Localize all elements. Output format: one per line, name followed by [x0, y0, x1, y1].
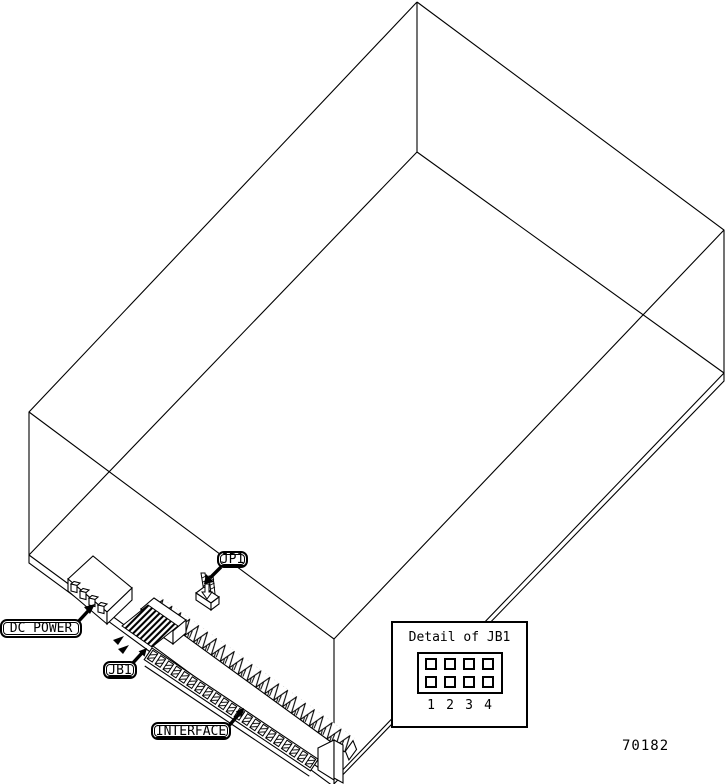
jb1-insert-arrow-icon — [113, 636, 124, 645]
jb1-detail-panel: Detail of JB1 1 2 3 4 — [391, 621, 528, 728]
jb1-detail-pin — [444, 676, 456, 688]
jb1-detail-pin — [482, 676, 494, 688]
jb1-detail-pin — [463, 676, 475, 688]
label-dc-power-text: DC POWER — [10, 622, 73, 635]
label-interface: INTERFACE — [151, 722, 231, 740]
pin-number: 3 — [463, 698, 475, 713]
label-jp1-text: JP1 — [221, 553, 244, 566]
jb1-detail-pin — [463, 658, 475, 670]
label-jb1-text: JB1 — [108, 664, 131, 677]
pin-number: 1 — [425, 698, 437, 713]
label-jb1: JB1 — [103, 661, 137, 679]
jb1-detail-pin-grid — [417, 652, 503, 694]
label-jp1: JP1 — [217, 551, 248, 568]
jb1-detail-pin — [425, 658, 437, 670]
jb1-detail-pin — [482, 658, 494, 670]
jb1-insert-arrow-icon — [118, 645, 129, 654]
pin-number: 4 — [482, 698, 494, 713]
label-interface-text: INTERFACE — [156, 725, 226, 738]
jb1-detail-pin — [425, 676, 437, 688]
figure-canvas: DC POWER JP1 JB1 INTERFACE Detail of JB1… — [0, 0, 727, 784]
dc-power-connector — [68, 556, 132, 624]
label-dc-power: DC POWER — [0, 619, 82, 638]
jp1-leader — [210, 567, 221, 578]
jb1-detail-title: Detail of JB1 — [393, 630, 526, 645]
figure-number: 70182 — [622, 738, 669, 754]
jb1-detail-pin-numbers: 1 2 3 4 — [417, 698, 503, 713]
interface-connector-end-faces — [318, 740, 343, 783]
jb1-detail-pin — [444, 658, 456, 670]
pin-number: 2 — [444, 698, 456, 713]
